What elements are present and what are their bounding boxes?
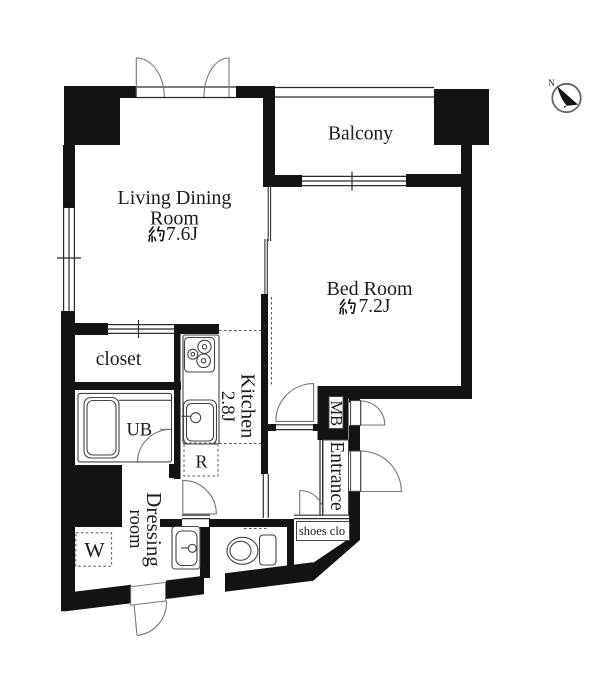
svg-text:closet: closet [96,349,142,370]
svg-text:W: W [84,538,105,562]
svg-text:Balcony: Balcony [328,124,393,145]
svg-text:7.6J: 7.6J [166,224,198,245]
svg-text:room: room [125,509,145,549]
svg-text:2.8J: 2.8J [217,391,238,422]
svg-text:R: R [195,452,207,472]
svg-text:Living Dining: Living Dining [118,187,232,209]
svg-text:shoes clo: shoes clo [299,524,345,538]
svg-text:Entrance: Entrance [326,441,347,510]
svg-text:Kitchen: Kitchen [236,374,258,439]
svg-text:7.2J: 7.2J [359,296,391,317]
svg-text:N: N [548,78,555,88]
svg-text:MB: MB [327,400,346,426]
svg-text:UB: UB [126,421,152,441]
